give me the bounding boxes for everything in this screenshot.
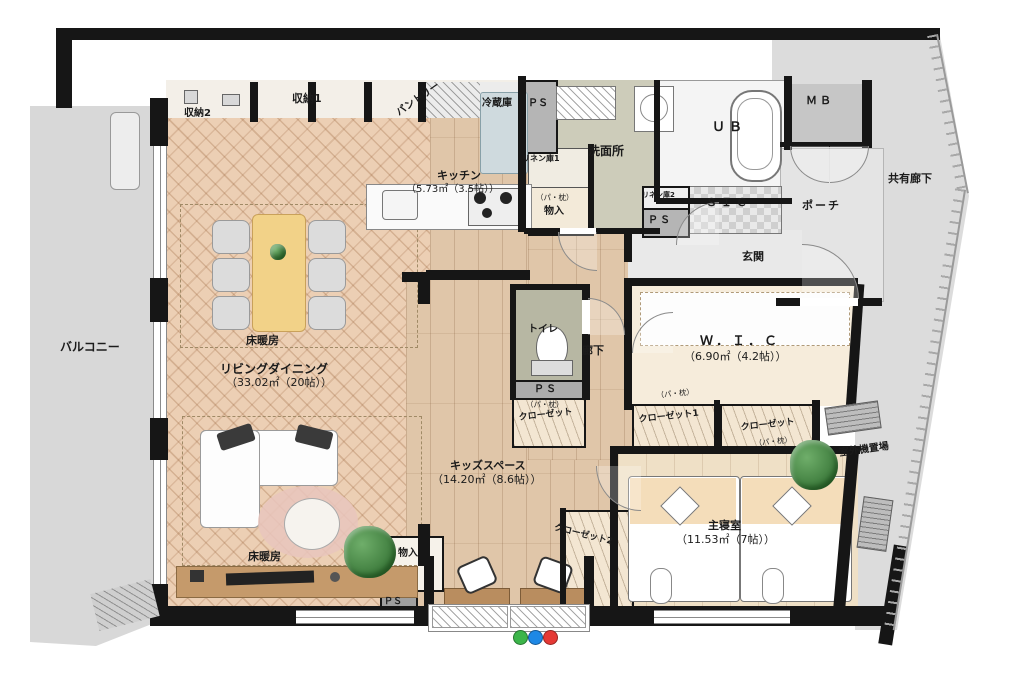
bedroom-window (654, 610, 790, 624)
label-refrigerator: 冷蔵庫 (482, 94, 512, 109)
label-hallway: 廊下 (582, 342, 604, 358)
marker-dot-green (513, 630, 528, 645)
av-item (330, 572, 340, 582)
label-balcony: バルコニー (60, 338, 120, 355)
vanity (556, 86, 616, 120)
basket-icon (222, 94, 240, 106)
label-meter-box: ＭＢ (806, 92, 834, 108)
plant (790, 440, 838, 490)
living-window (296, 610, 414, 624)
label-linen2: リネン庫2 (642, 190, 675, 200)
label-storage1: 収納1 (292, 90, 322, 106)
balcony-window (153, 322, 167, 418)
label-floor-heating-living: 床暖房 (248, 548, 281, 564)
label-shared-corridor: 共有廊下 (888, 170, 932, 186)
marker-dot-red (543, 630, 558, 645)
label-master-bedroom-area: （11.53㎡（7帖）） (676, 531, 775, 547)
dining-chair (308, 258, 346, 292)
label-ps-top: ＰＳ (528, 94, 548, 109)
dining-chair (212, 220, 250, 254)
toilet-tank (531, 360, 573, 376)
label-porch: ポーチ (802, 197, 841, 213)
av-item (190, 570, 204, 582)
round-table (284, 498, 340, 550)
label-monoire-kids: 物入 (398, 544, 418, 559)
label-entrance: 玄関 (742, 248, 764, 264)
kids-door-leaf (432, 606, 508, 628)
label-washroom: 洗面所 (588, 142, 624, 159)
dining-chair (212, 258, 250, 292)
label-kids-space-area: （14.20㎡（8.6帖）） (432, 471, 541, 487)
room-ps-top (524, 80, 558, 154)
plant (344, 526, 396, 578)
label-floor-heating-dining: 床暖房 (246, 332, 279, 348)
label-wic: Ｗ．Ｉ．Ｃ (700, 330, 780, 349)
dining-table (252, 214, 306, 332)
label-wic-area: （6.90㎡（4.2帖）） (684, 348, 787, 364)
dining-chair (212, 296, 250, 330)
trash-bin-icon (184, 90, 198, 104)
label-sic: ＳＩＣ (706, 194, 751, 210)
marker-dot-blue (528, 630, 543, 645)
label-ps-bottom: ＰＳ (384, 594, 402, 607)
label-monoire-kitchen: 物入 (544, 202, 564, 217)
label-ps-entrance: ＰＳ (648, 211, 672, 226)
dining-chair (308, 220, 346, 254)
stove-burner (500, 192, 512, 204)
label-kitchen-area: （5.73㎡（3.5帖）） (406, 180, 499, 195)
label-toilet: トイレ (528, 320, 558, 335)
dining-chair (308, 296, 346, 330)
entrance-door-gap (800, 298, 858, 306)
kids-door-leaf (510, 606, 586, 628)
balcony-window (153, 460, 167, 584)
balcony-window (153, 146, 167, 278)
label-living-dining-area: （33.02㎡（20帖）） (226, 374, 332, 390)
table-plant (270, 244, 286, 260)
balcony-bench (110, 112, 140, 190)
bed-bolster (762, 568, 784, 604)
label-linen1: リネン庫1 (522, 153, 560, 164)
label-unit-bath: ＵＢ (712, 116, 746, 135)
stove-burner (482, 208, 492, 218)
bed-bolster (650, 568, 672, 604)
floor-plan: バルコニー 収納2 収納1 パントリー 冷蔵庫 ＰＳ キッチン （5.73㎡（3… (0, 0, 1024, 683)
label-ps-hall: ＰＳ (534, 380, 558, 395)
label-storage2: 収納2 (184, 104, 211, 119)
